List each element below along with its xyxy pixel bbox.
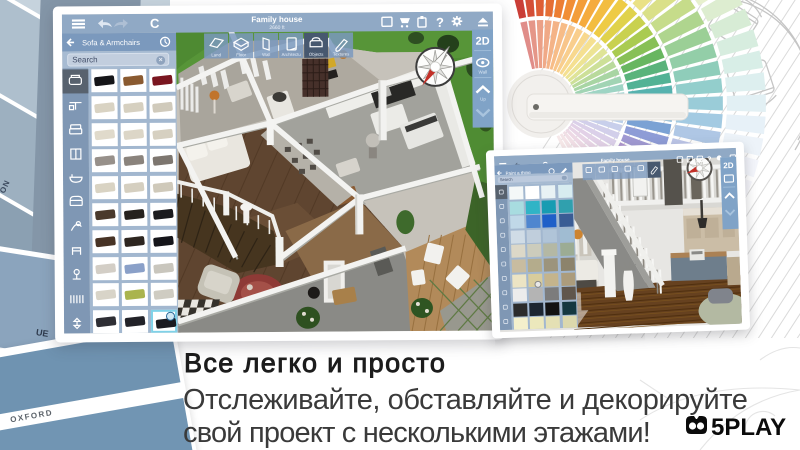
svg-text:2D: 2D [723,161,734,170]
svg-text:Wall: Wall [478,70,487,75]
svg-text:Up: Up [480,97,486,102]
svg-text:C: C [150,16,160,31]
svg-text:5PLAY: 5PLAY [711,414,786,439]
svg-text:Wall: Wall [262,52,270,57]
svg-text:Textures: Textures [333,52,349,57]
svg-text:Family house: Family house [251,15,303,24]
svg-text:?: ? [436,15,444,30]
svg-text:Objects: Objects [309,52,324,57]
svg-text:Floor: Floor [236,52,246,57]
svg-text:Sofa & Armchairs: Sofa & Armchairs [82,38,140,47]
svg-text:Land: Land [211,52,221,57]
svg-text:2660 ft: 2660 ft [269,25,285,31]
svg-text:Architectu: Architectu [282,52,302,57]
svg-text:2D: 2D [476,36,490,48]
